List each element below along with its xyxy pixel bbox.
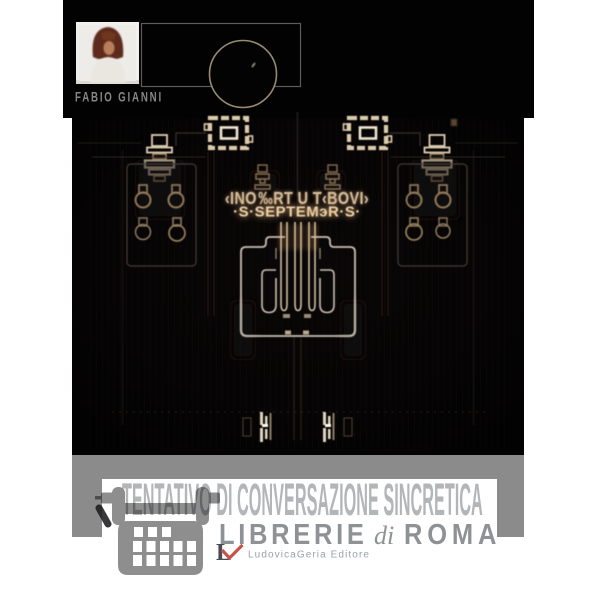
svg-text:·S·SEPTEMэR·S·: ·S·SEPTEMэR·S· xyxy=(233,204,361,221)
svg-text:LudovicaGeria Editore: LudovicaGeria Editore xyxy=(248,550,370,561)
svg-text:di: di xyxy=(374,521,394,550)
svg-text:FABIO GIANNI: FABIO GIANNI xyxy=(75,90,163,105)
svg-text:ROMA: ROMA xyxy=(404,517,501,550)
